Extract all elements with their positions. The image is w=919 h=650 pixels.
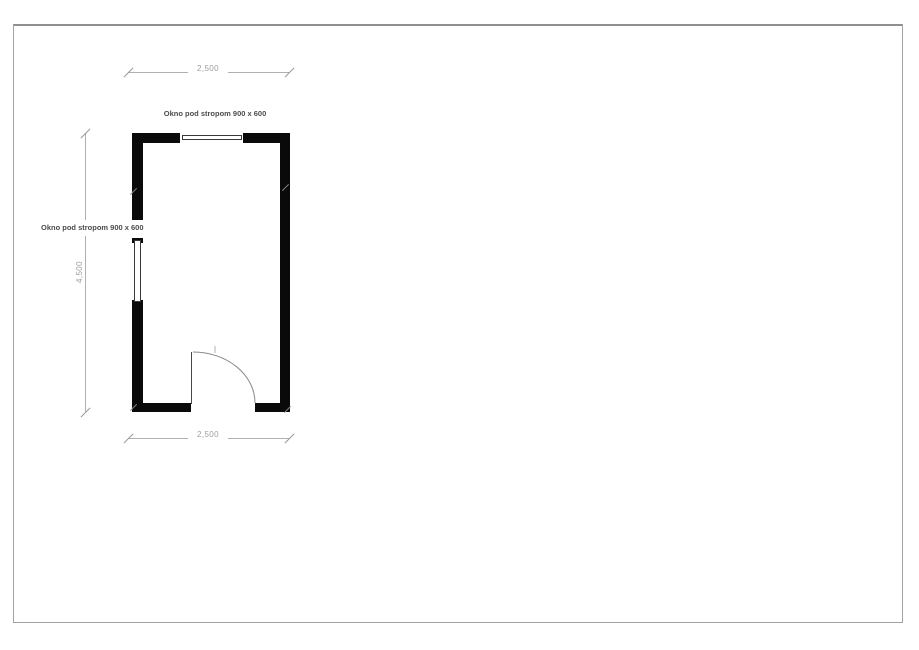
dimension-line: [85, 133, 86, 412]
window-label-left: Okno pod stropom 900 x 600: [38, 220, 148, 236]
dimension-value-top: 2,500: [188, 64, 228, 74]
dimension-value-left: 4,500: [75, 255, 85, 289]
window-label-top: Okno pod stropom 900 x 600: [155, 109, 275, 118]
dimension-value-bottom: 2,500: [188, 430, 228, 440]
drawing-canvas: 2,500 2,500 4,500 Okno pod stropom 900 x…: [0, 0, 919, 650]
door-swing-arc: [193, 352, 255, 403]
door-symbol: [0, 0, 919, 650]
